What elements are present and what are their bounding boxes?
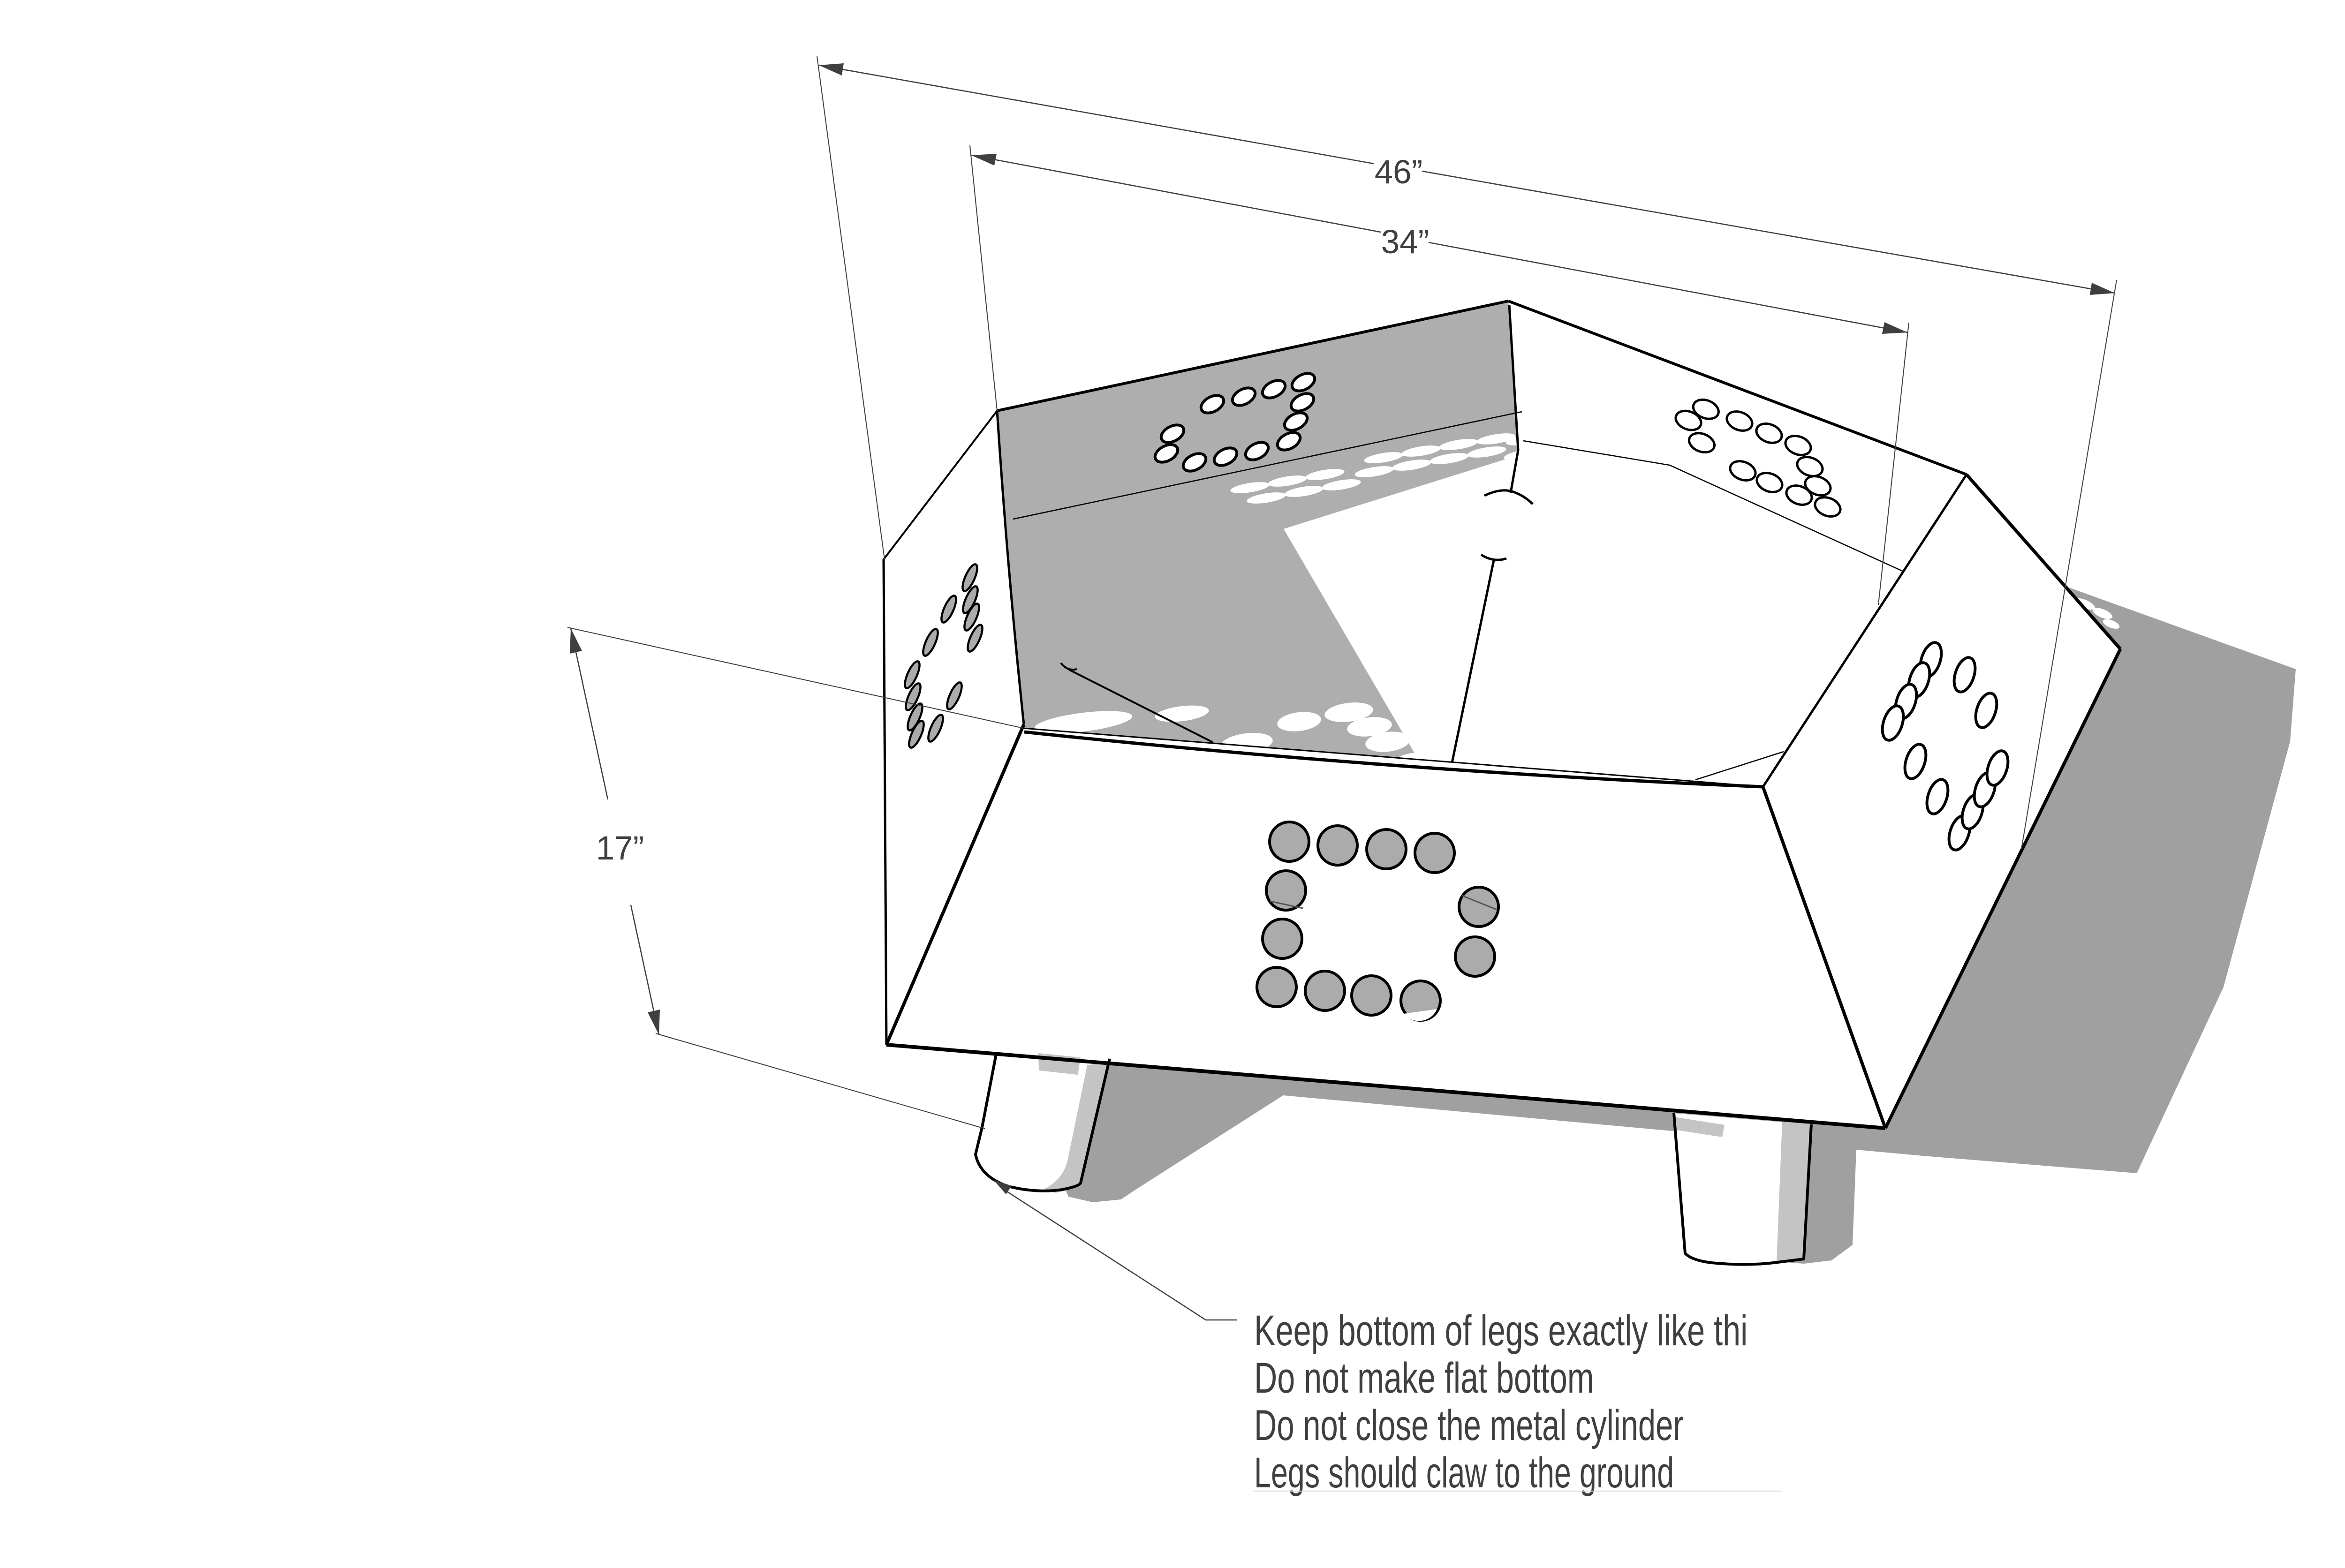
svg-text:46”: 46”	[1375, 154, 1423, 191]
svg-text:Do not close the metal cylinde: Do not close the metal cylinder	[1254, 1402, 1684, 1450]
svg-text:Keep bottom of legs exactly li: Keep bottom of legs exactly like thi	[1254, 1307, 1747, 1355]
svg-text:17”: 17”	[596, 830, 644, 867]
svg-text:Do not make flat bottom: Do not make flat bottom	[1254, 1354, 1594, 1402]
svg-text:34”: 34”	[1381, 224, 1430, 261]
svg-text:Legs should claw to the ground: Legs should claw to the ground	[1254, 1448, 1674, 1497]
